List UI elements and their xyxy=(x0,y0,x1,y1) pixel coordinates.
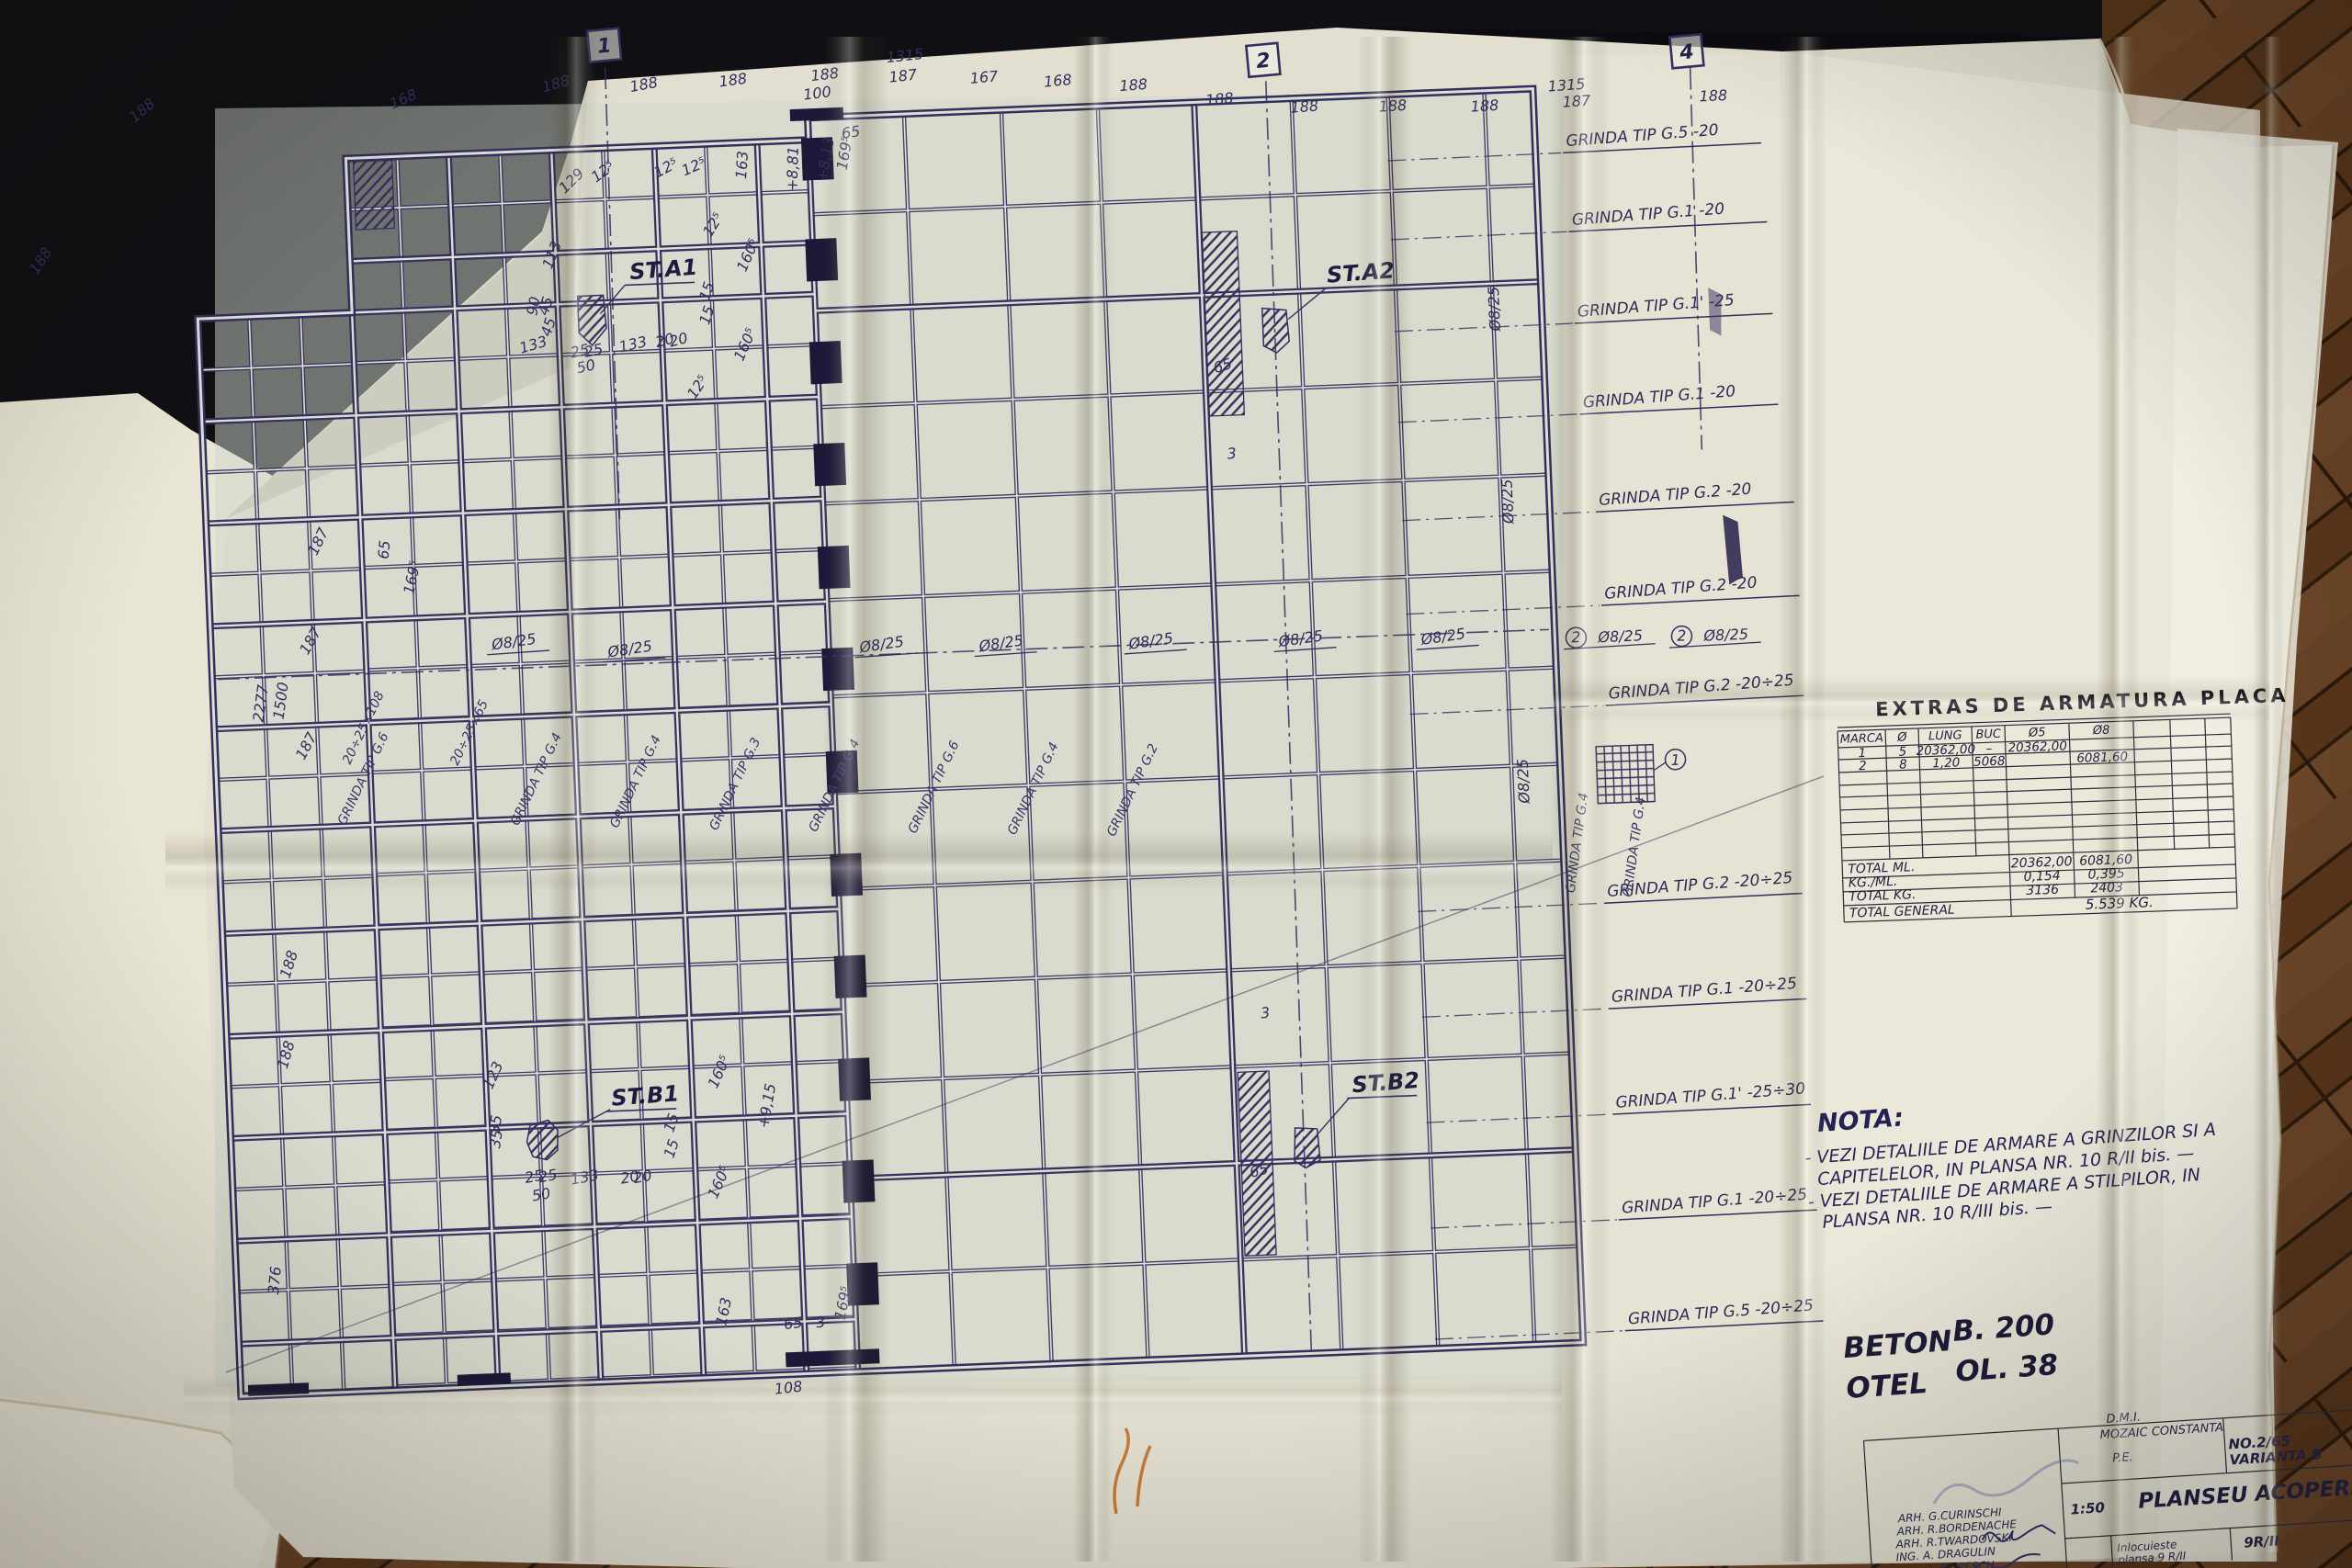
photo-vignette xyxy=(0,0,2352,1568)
photo-stage: 1241881881681881881881881001315187167168… xyxy=(0,0,2352,1568)
blueprint-photo: 1241881881681881881881881001315187167168… xyxy=(0,0,2352,1568)
